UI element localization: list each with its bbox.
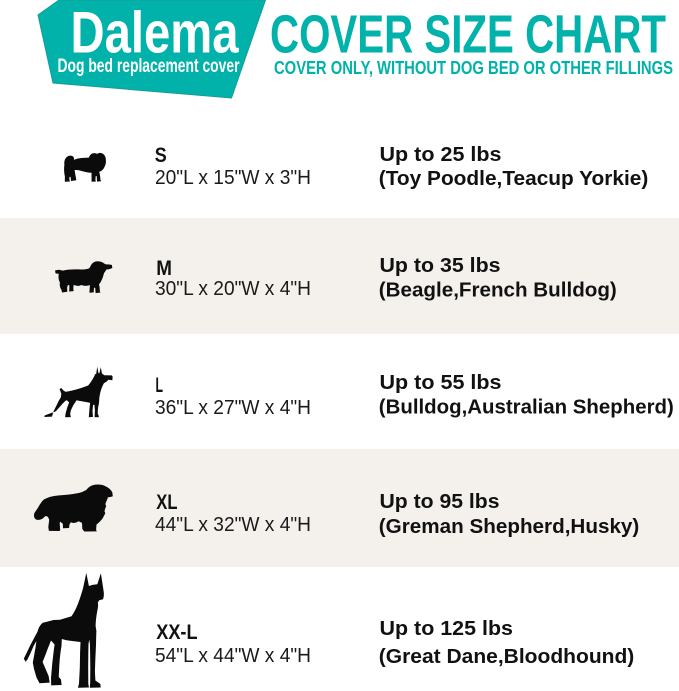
svg-text:COVER ONLY, WITHOUT DOG BED OR: COVER ONLY, WITHOUT DOG BED OR OTHER FIL…	[274, 58, 673, 78]
svg-text:54"L x 44"W x 4"H: 54"L x 44"W x 4"H	[155, 645, 311, 667]
svg-text:Up to 125 lbs: Up to 125 lbs	[380, 617, 514, 640]
svg-text:(Bulldog,Australian Shepherd): (Bulldog,Australian Shepherd)	[379, 396, 674, 419]
svg-text:36"L x 27"W x 4"H: 36"L x 27"W x 4"H	[155, 397, 311, 419]
svg-text:(Beagle,French Bulldog): (Beagle,French Bulldog)	[379, 278, 617, 301]
svg-text:Up to 55 lbs: Up to 55 lbs	[380, 371, 502, 394]
svg-text:(Greman Shepherd,Husky): (Greman Shepherd,Husky)	[379, 515, 640, 538]
svg-text:COVER SIZE CHART: COVER SIZE CHART	[270, 5, 666, 65]
svg-text:Dog bed replacement cover: Dog bed replacement cover	[58, 56, 240, 77]
svg-text:M: M	[156, 256, 172, 280]
svg-text:(Toy Poodle,Teacup Yorkie): (Toy Poodle,Teacup Yorkie)	[379, 167, 649, 190]
svg-text:Up to 25 lbs: Up to 25 lbs	[380, 143, 502, 166]
svg-text:30"L x 20"W x 4"H: 30"L x 20"W x 4"H	[155, 278, 311, 300]
svg-text:44"L x 32"W x 4"H: 44"L x 32"W x 4"H	[155, 514, 311, 536]
svg-text:XL: XL	[156, 490, 177, 514]
svg-text:20"L x 15"W x 3"H: 20"L x 15"W x 3"H	[155, 167, 311, 189]
svg-text:(Great Dane,Bloodhound): (Great Dane,Bloodhound)	[379, 645, 635, 668]
svg-text:S: S	[155, 143, 167, 167]
svg-text:L: L	[156, 373, 164, 397]
svg-text:Up to 95 lbs: Up to 95 lbs	[380, 490, 500, 513]
svg-text:XX-L: XX-L	[156, 620, 197, 644]
svg-text:Up to 35 lbs: Up to 35 lbs	[380, 254, 501, 277]
